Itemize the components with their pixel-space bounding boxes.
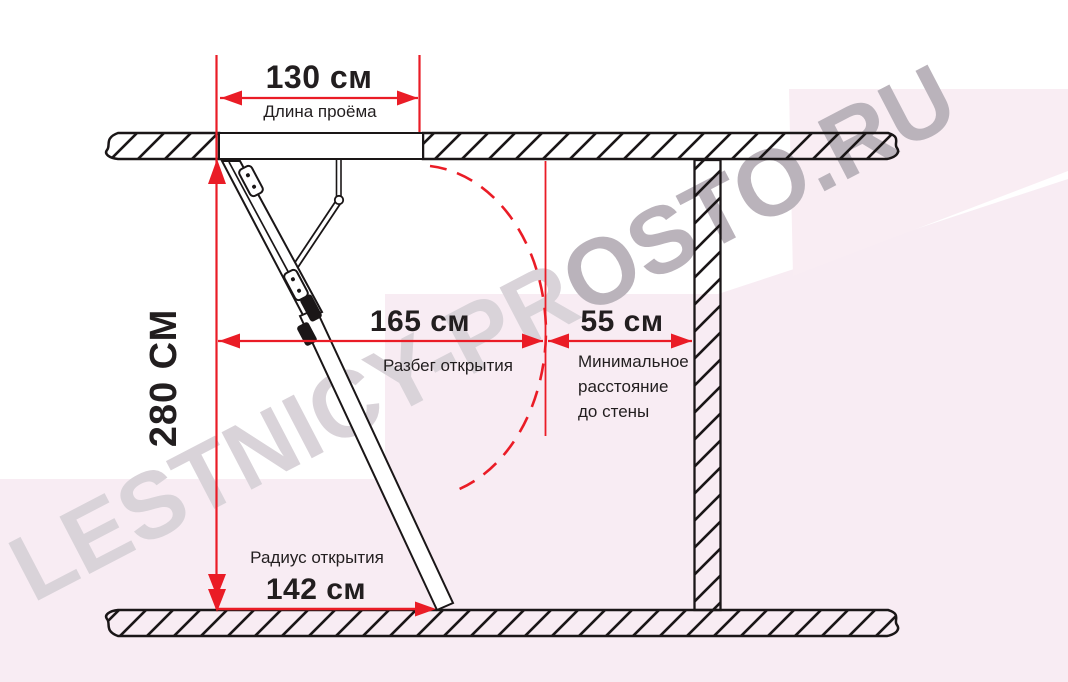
opening-run-label: Разбег открытия <box>348 356 548 376</box>
diagram-canvas: LESTNICY-PROSTO.RU <box>0 0 1068 682</box>
hatch-opening <box>219 133 423 159</box>
opening-radius-value: 142 см <box>216 573 416 607</box>
wall-distance-label-line: Минимальное <box>578 349 728 374</box>
floor-band <box>106 610 898 636</box>
ceiling-height-value: 280 СМ <box>143 283 189 473</box>
opening-length-label: Длина проёма <box>220 102 420 122</box>
wall-distance-label: Минимальное расстояние до стены <box>578 349 728 424</box>
arrow-165-left <box>219 334 240 349</box>
wall-distance-value: 55 см <box>522 305 722 339</box>
ceiling-right-segment <box>423 133 898 159</box>
opening-length-value: 130 см <box>219 59 419 96</box>
strut-pivot <box>335 196 343 204</box>
wall-distance-label-line: расстояние <box>578 374 728 399</box>
ceiling-left-segment <box>106 133 219 159</box>
opening-run-value: 165 см <box>320 305 520 339</box>
wall-distance-label-line: до стены <box>578 399 728 424</box>
opening-radius-label: Радиус открытия <box>217 548 417 568</box>
